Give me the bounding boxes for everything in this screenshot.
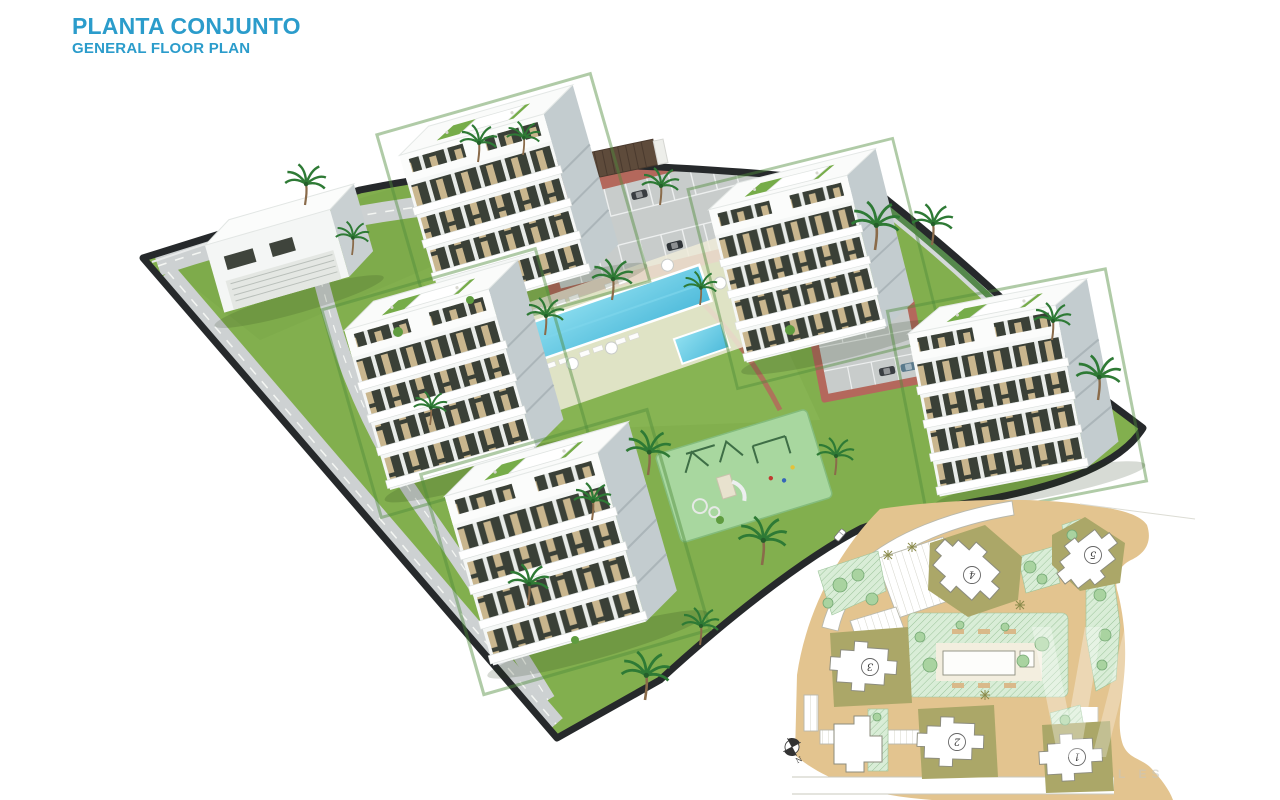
plan-building-label-4: 4 bbox=[969, 569, 976, 580]
plan-building-label-5: 5 bbox=[1090, 549, 1096, 560]
plan-building-label-3: 3 bbox=[867, 661, 873, 672]
watermark-text: L ES bbox=[1118, 767, 1164, 781]
plan-pool bbox=[943, 651, 1015, 675]
plan-car-icon bbox=[834, 528, 846, 541]
plan-building-label-2: 2 bbox=[954, 736, 961, 747]
site-plan-inset: 1 2 3 4 5 N bbox=[780, 495, 1280, 800]
plan-sheet: PLANTA CONJUNTO GENERAL FLOOR PLAN bbox=[0, 0, 1280, 800]
